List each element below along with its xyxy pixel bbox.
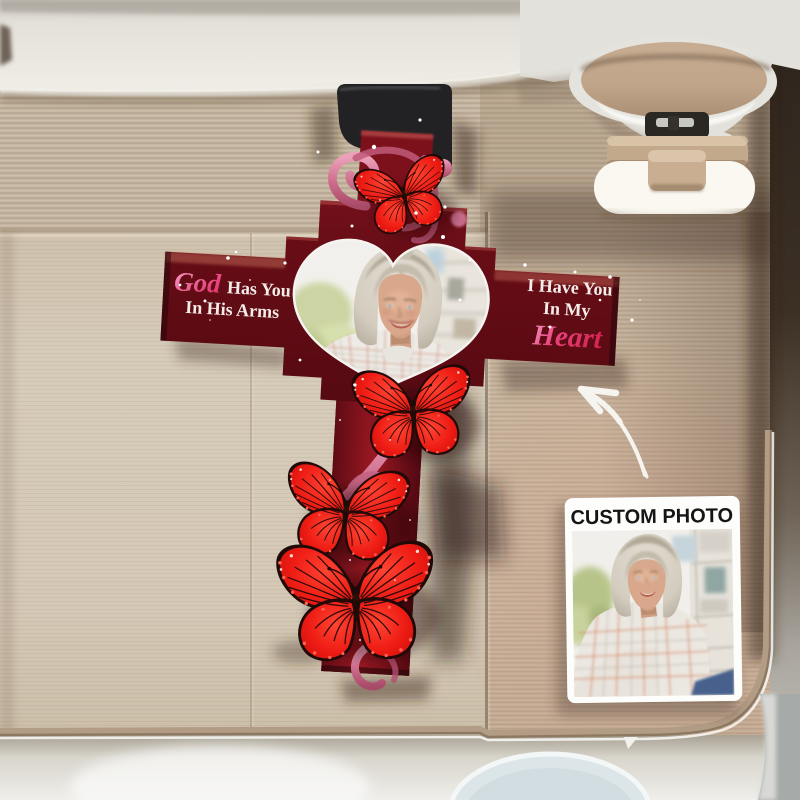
svg-text:CUSTOM PHOTO: CUSTOM PHOTO <box>570 505 733 529</box>
svg-text:In My: In My <box>542 298 591 321</box>
svg-text:Heart: Heart <box>531 319 604 355</box>
